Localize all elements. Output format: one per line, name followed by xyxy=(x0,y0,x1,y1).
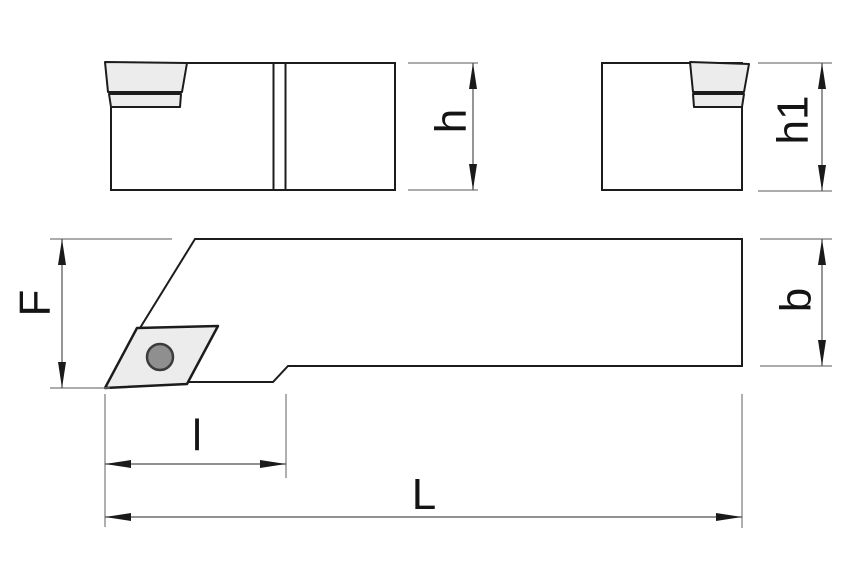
dim-h1-label: h1 xyxy=(769,96,818,145)
dim-h1-arrow-up-icon xyxy=(818,63,826,89)
dimension-h1: h1 xyxy=(758,63,832,191)
dim-h-arrow-up-icon xyxy=(469,63,477,89)
dim-L-label: L xyxy=(412,470,436,519)
dim-b-label: b xyxy=(772,288,821,312)
main-view xyxy=(105,239,742,388)
end-view xyxy=(602,62,749,190)
dim-F-arrow-up-icon xyxy=(58,239,66,265)
dim-h1-arrow-down-icon xyxy=(818,165,826,191)
side-view xyxy=(105,62,395,190)
dimension-b: b xyxy=(760,239,832,366)
dim-l-arrow-right-icon xyxy=(260,460,286,468)
dim-h-arrow-down-icon xyxy=(469,164,477,190)
main-view-body xyxy=(140,239,742,382)
dim-l-arrow-left-icon xyxy=(105,460,131,468)
side-view-shim xyxy=(109,94,181,107)
dim-b-arrow-down-icon xyxy=(818,340,826,366)
drawing-canvas: h h1 F b l xyxy=(0,0,850,567)
dim-F-arrow-down-icon xyxy=(58,362,66,388)
dimension-l: l xyxy=(105,394,286,527)
dim-L-arrow-left-icon xyxy=(105,513,131,521)
end-view-shim xyxy=(693,94,744,107)
dim-L-arrow-right-icon xyxy=(716,513,742,521)
dim-h-label: h xyxy=(427,109,476,133)
dim-F-label: F xyxy=(11,290,60,317)
tool-holder-drawing: h h1 F b l xyxy=(0,0,850,567)
end-view-insert xyxy=(690,62,749,92)
insert-screw-hole xyxy=(147,344,173,370)
dimension-h: h xyxy=(408,63,478,190)
dim-b-arrow-up-icon xyxy=(818,239,826,265)
side-view-insert xyxy=(105,62,187,92)
dim-l-label: l xyxy=(192,411,202,460)
